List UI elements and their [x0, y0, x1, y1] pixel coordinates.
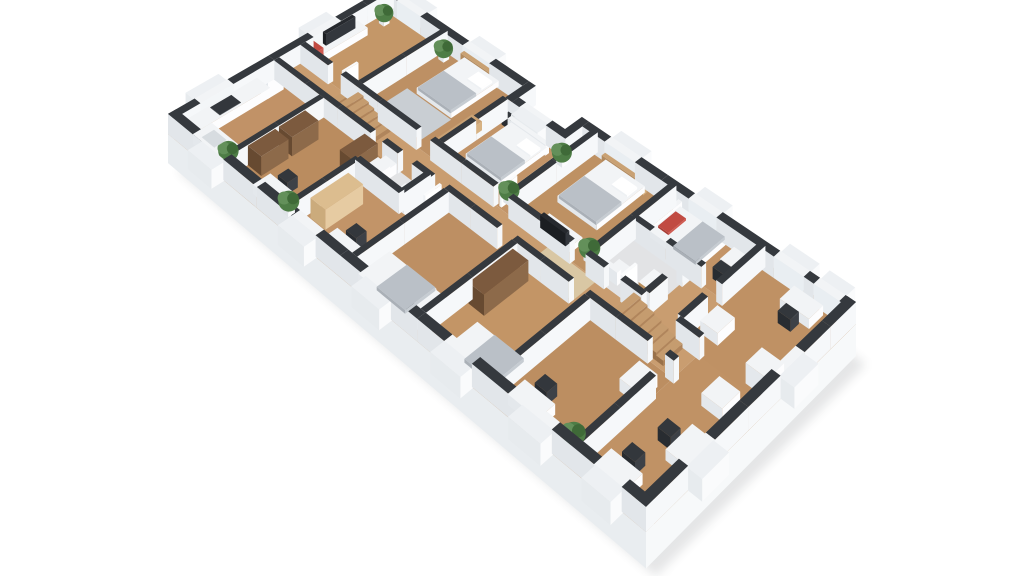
corridor-wall-sw-7 — [665, 350, 679, 384]
plant-notch-foliage — [561, 145, 572, 156]
plant-bedroom-r8-foliage — [442, 41, 452, 51]
floorplan-stage — [0, 0, 1024, 576]
plant-kitchen-foliage — [227, 143, 238, 154]
floorplan-3d-render — [0, 0, 1024, 576]
plant-bedroom-r9-foliage — [508, 182, 519, 193]
plant-bathroom-2-foliage — [588, 240, 600, 252]
plant-common-room-foliage — [287, 193, 299, 205]
plant-lounge-foliage — [383, 6, 393, 16]
